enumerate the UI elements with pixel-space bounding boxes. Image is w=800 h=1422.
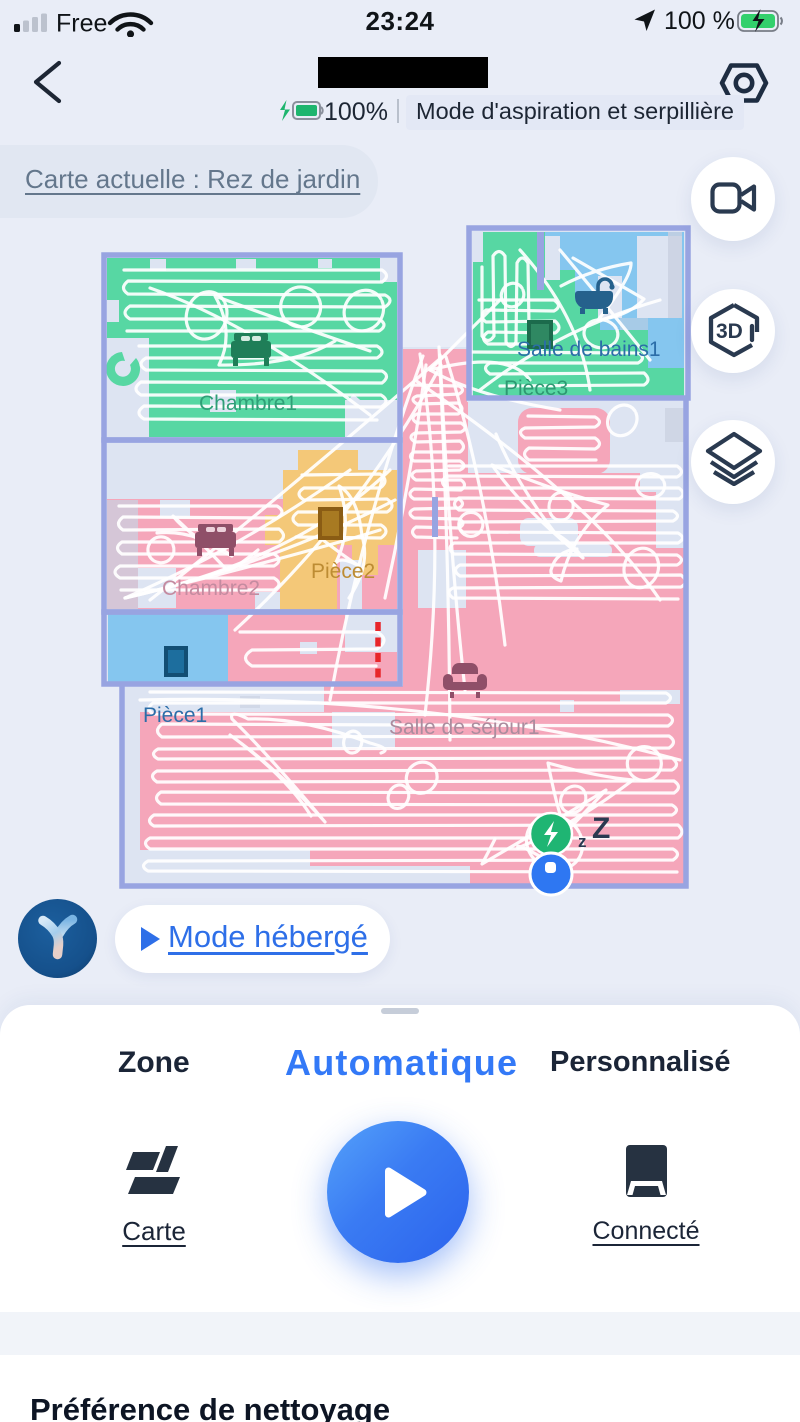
svg-text:Chambre1: Chambre1 — [199, 392, 297, 415]
svg-text:3D: 3D — [716, 320, 743, 343]
svg-text:Free: Free — [56, 10, 107, 37]
svg-text:Pièce2: Pièce2 — [311, 560, 375, 583]
svg-text:100 %: 100 % — [664, 8, 735, 34]
svg-text:Pièce3: Pièce3 — [504, 377, 568, 400]
svg-text:Chambre2: Chambre2 — [162, 577, 260, 600]
svg-text:Z: Z — [592, 812, 610, 845]
svg-text:Pièce1: Pièce1 — [143, 704, 207, 727]
svg-text:z: z — [578, 832, 587, 851]
svg-text:Salle de bains1: Salle de bains1 — [517, 338, 661, 361]
svg-text:Salle de séjour1: Salle de séjour1 — [389, 716, 540, 739]
